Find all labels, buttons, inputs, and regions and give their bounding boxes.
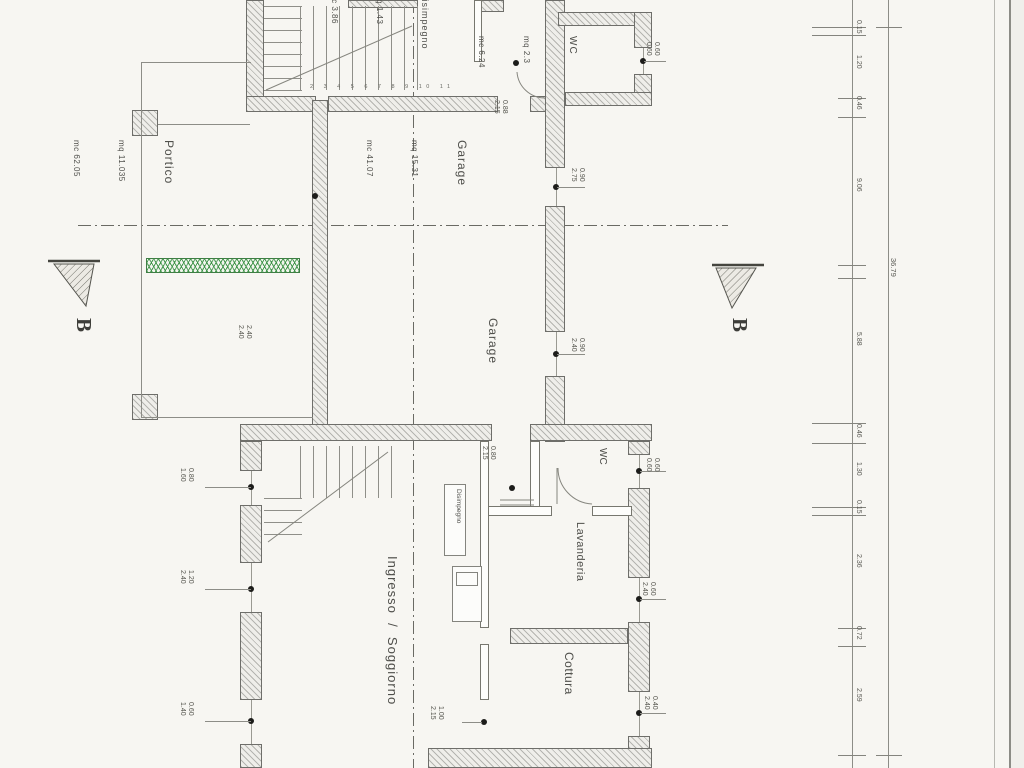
chain-label: 1.30 [855,462,862,476]
dim-label: 0.882.15 [492,100,524,114]
floor-plan-scan: 2 3 4 5 6 7 8 9 10 11 B B [0,0,1024,768]
dim-label: 0.902.40 [569,338,601,352]
dim-leader [557,354,585,355]
room-label-garage-top: Garage mq 15.31 mc 41.07 [329,140,505,186]
room-label-lavanderia: Lavanderia [574,522,586,581]
room-label-portico: Portico mq 11.035 mc 62.05 [36,140,212,184]
chain-label: 0.46 [855,424,862,438]
dim-leader [640,713,666,714]
section-arrow-left [48,261,100,306]
pivot-dot [513,60,519,66]
chain-tick [838,117,866,118]
dim-label: 2.402.40 [236,325,268,339]
room-label-ingresso: Ingresso / Soggiorno [385,556,400,705]
dim-label: 1.202.40 [178,570,210,584]
dim-label: 0.600.60 [644,42,676,56]
dim-label: 0.802.15 [480,446,512,460]
dim-label: 0.402.40 [642,696,674,710]
dim-label: 1.002.15 [428,706,460,720]
chain-tick [838,646,866,647]
chain-tick [838,265,866,266]
room-label-disimpegno-bottom: Disimpegno [455,489,462,523]
dim-leader [640,599,666,600]
chain-tick [876,755,902,756]
dim-label: 0.902.75 [569,168,601,182]
page-border-line [994,0,995,768]
room-label-garage-main: Garage [486,318,500,364]
chain-line-total [888,0,889,768]
dim-leader [205,487,251,488]
dim-leader [557,187,585,188]
dim-leader [462,722,482,723]
chain-tick [838,755,866,756]
pivot-dot [312,193,318,199]
chain-label: 0.15 [855,20,862,34]
chain-tick [812,515,866,516]
section-label-right: B [727,318,752,332]
chain-label: 5.88 [855,332,862,346]
room-label-cottura: Cottura [562,652,576,695]
page-margin [1011,0,1024,768]
dim-leader [644,61,666,62]
chain-label: 2.59 [855,688,862,702]
section-label-left: B [71,318,96,332]
chain-label: 9.06 [855,178,862,192]
chain-label: 0.72 [855,626,862,640]
chain-label: 1.20 [855,55,862,69]
chain-tick [876,27,902,28]
chain-label: 0.46 [855,96,862,110]
chain-tick [812,35,866,36]
room-label-wc-top: WC mq 2.3 mc 6.24 [441,36,614,68]
section-arrow-right [712,265,764,308]
pivot-dot [509,485,515,491]
chain-tick [838,278,866,279]
chain-line [852,0,853,768]
chain-total-label: 36.79 [889,258,898,277]
chain-label: 0.15 [855,500,862,514]
chain-label: 2.36 [855,554,862,568]
dim-label: 0.601.40 [178,702,210,716]
room-label-wc-bottom: WC [597,448,608,465]
dim-label: 0.600.60 [644,458,676,472]
plan-linework [0,0,1024,768]
dim-leader [205,721,251,722]
dim-label: 0.801.60 [178,468,210,482]
chain-tick [812,443,866,444]
dim-leader [205,589,251,590]
dim-label: 0.602.40 [640,582,672,596]
